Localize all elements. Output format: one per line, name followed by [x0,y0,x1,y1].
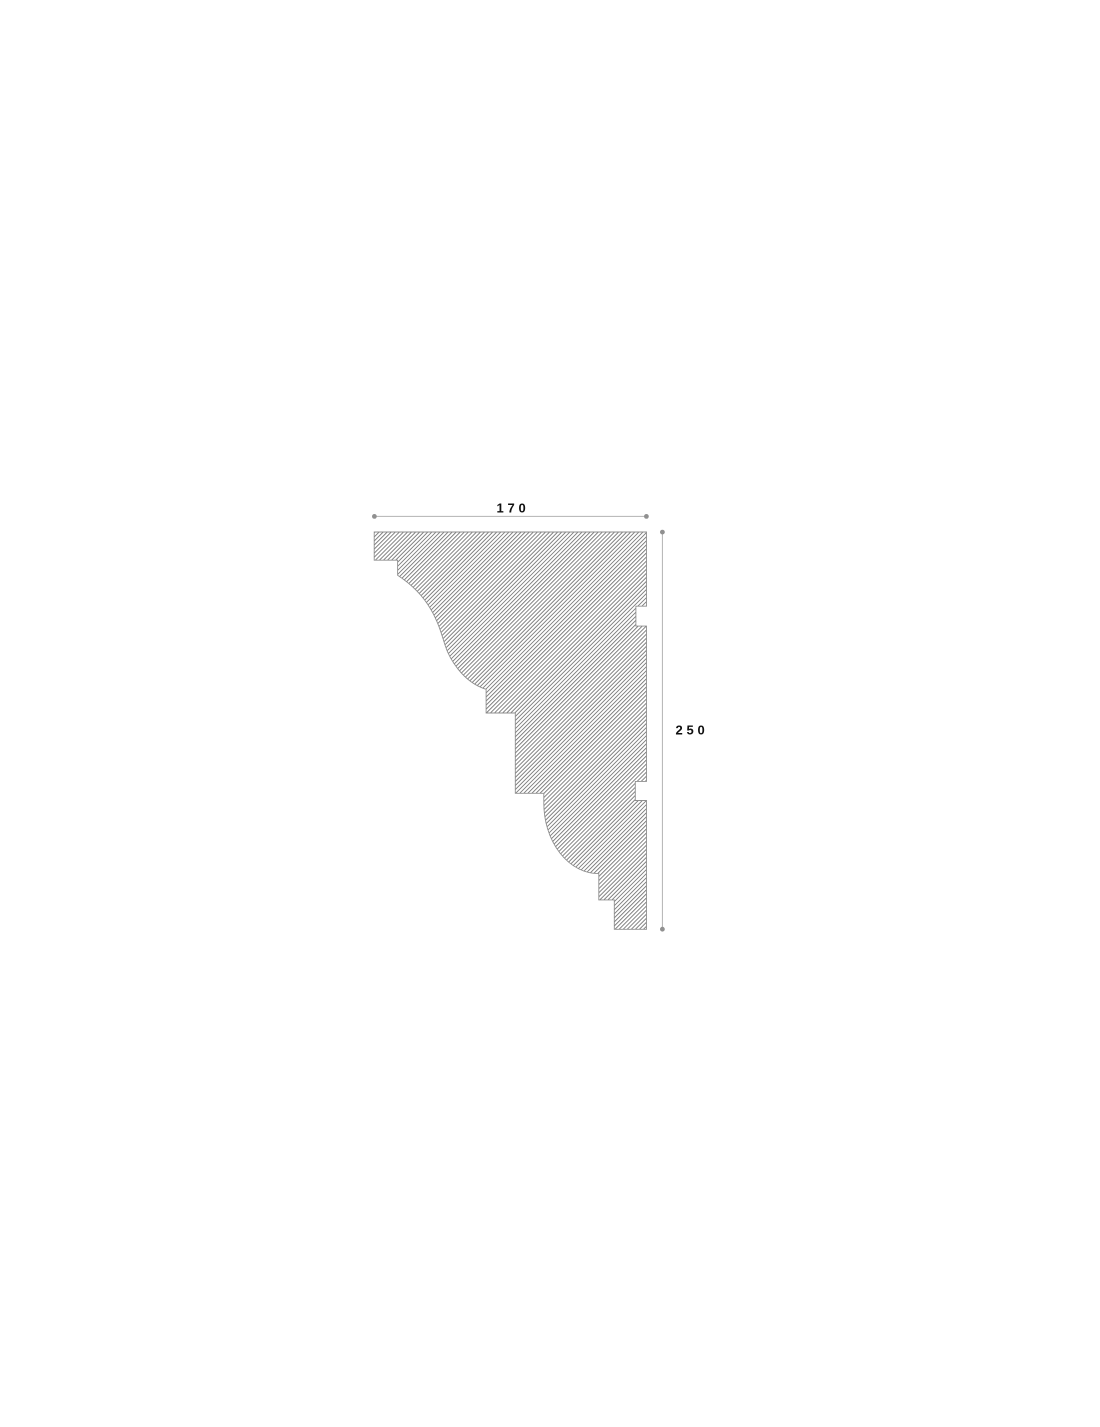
svg-text:250: 250 [675,723,708,738]
svg-text:170: 170 [496,501,529,516]
